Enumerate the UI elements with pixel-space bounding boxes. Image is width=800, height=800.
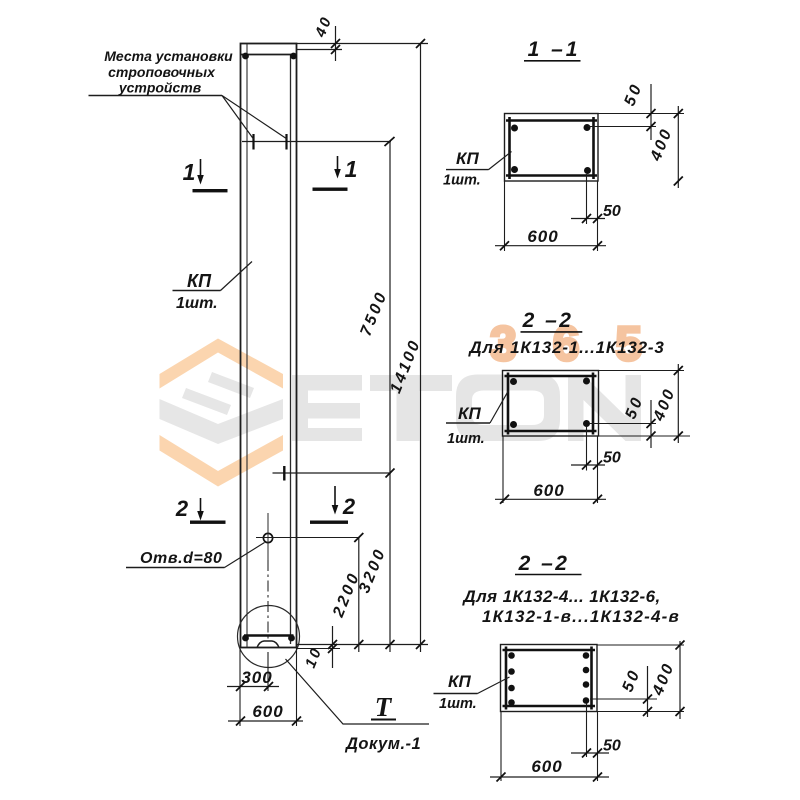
svg-text:2 –2: 2 –2 bbox=[522, 309, 574, 332]
svg-text:Отв.d=80: Отв.d=80 bbox=[140, 550, 223, 567]
svg-text:50: 50 bbox=[603, 738, 621, 755]
svg-text:1: 1 bbox=[183, 159, 196, 185]
svg-text:Места установки: Места установки bbox=[104, 48, 233, 64]
svg-text:2: 2 bbox=[342, 494, 356, 519]
svg-text:1шт.: 1шт. bbox=[447, 431, 485, 447]
svg-text:1шт.: 1шт. bbox=[176, 295, 218, 312]
svg-text:600: 600 bbox=[533, 481, 564, 500]
svg-text:КП: КП bbox=[458, 404, 481, 423]
svg-text:2 –2: 2 –2 bbox=[518, 552, 570, 575]
svg-text:Для 1К132-1...1К132-3: Для 1К132-1...1К132-3 bbox=[467, 338, 664, 357]
svg-text:КП: КП bbox=[456, 149, 479, 168]
svg-text:Т: Т bbox=[375, 692, 393, 722]
svg-text:КП: КП bbox=[187, 271, 212, 291]
svg-text:1 –1: 1 –1 bbox=[528, 38, 581, 61]
svg-text:600: 600 bbox=[252, 702, 283, 721]
svg-text:300: 300 bbox=[241, 668, 272, 687]
svg-text:строповочных: строповочных bbox=[108, 64, 216, 80]
svg-text:1: 1 bbox=[345, 156, 358, 182]
svg-text:КП: КП bbox=[448, 672, 471, 691]
svg-text:Для 1К132-4... 1К132-6,: Для 1К132-4... 1К132-6, bbox=[461, 587, 660, 606]
svg-text:1шт.: 1шт. bbox=[443, 173, 481, 189]
svg-text:50: 50 bbox=[603, 450, 621, 467]
svg-text:1шт.: 1шт. bbox=[439, 696, 477, 712]
svg-text:600: 600 bbox=[531, 757, 562, 776]
svg-text:2: 2 bbox=[175, 496, 189, 521]
svg-text:устройств: устройств bbox=[118, 80, 202, 96]
svg-text:600: 600 bbox=[527, 227, 558, 246]
svg-text:Докум.-1: Докум.-1 bbox=[344, 735, 421, 753]
svg-text:50: 50 bbox=[603, 203, 621, 220]
svg-text:1К132-1-в...1К132-4-в: 1К132-1-в...1К132-4-в bbox=[482, 607, 680, 626]
